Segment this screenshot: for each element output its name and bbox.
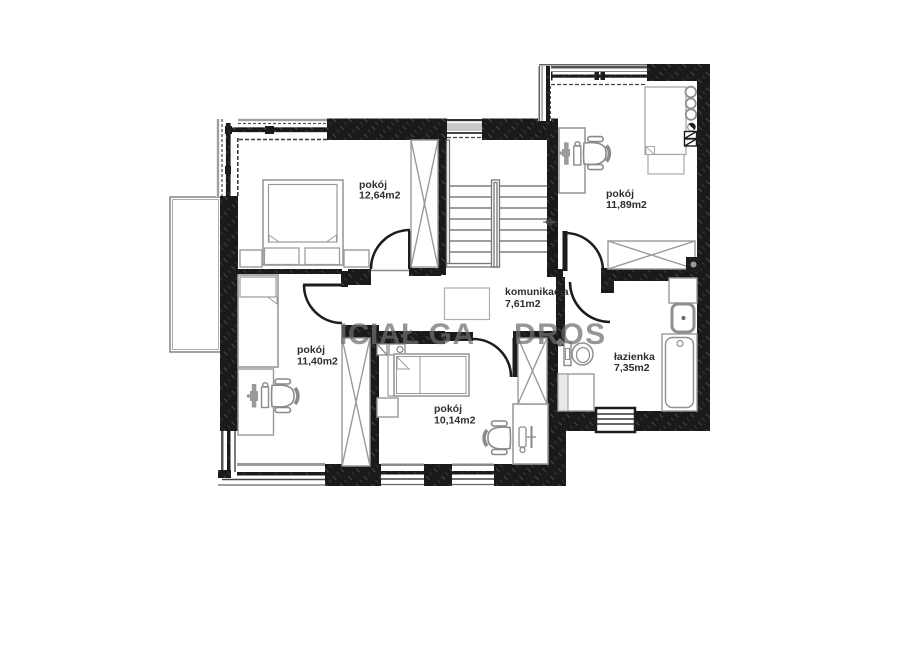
svg-text:7,61m2: 7,61m2: [505, 298, 541, 310]
svg-text:10,14m2: 10,14m2: [434, 415, 476, 427]
svg-text:ICIAŁ GA: ICIAŁ GA: [339, 318, 475, 351]
svg-text:DROS: DROS: [514, 318, 607, 351]
svg-text:komunikacja: komunikacja: [505, 286, 569, 298]
svg-text:7,35m2: 7,35m2: [614, 362, 650, 374]
svg-text:pokój: pokój: [434, 403, 462, 415]
svg-text:12,64m2: 12,64m2: [359, 190, 401, 202]
svg-text:11,40m2: 11,40m2: [297, 356, 338, 368]
svg-text:11,89m2: 11,89m2: [606, 199, 647, 211]
svg-text:pokój: pokój: [297, 344, 325, 356]
